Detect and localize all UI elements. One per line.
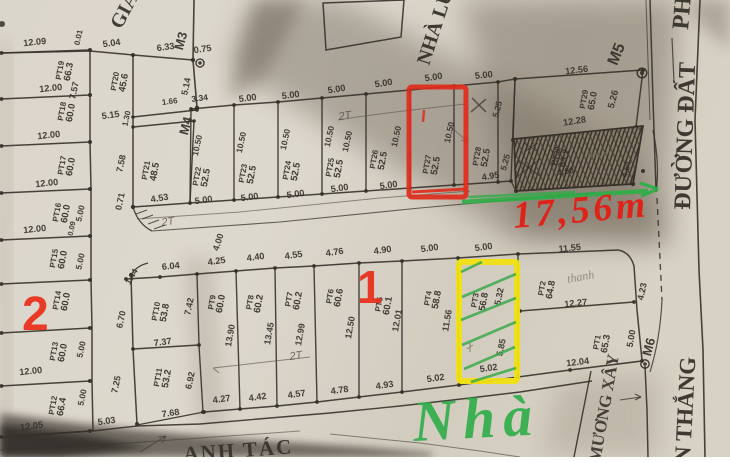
svg-text:6.04: 6.04 [161, 260, 181, 272]
svg-text:1: 1 [357, 261, 383, 313]
svg-text:5.00: 5.00 [474, 69, 493, 81]
svg-text:2: 2 [22, 288, 49, 341]
svg-text:ĐƯỜNG ĐẤT: ĐƯỜNG ĐẤT [669, 62, 701, 211]
svg-text:PH: PH [668, 0, 697, 31]
svg-text:3.34: 3.34 [191, 92, 209, 104]
svg-text:Nhà: Nhà [410, 382, 541, 454]
